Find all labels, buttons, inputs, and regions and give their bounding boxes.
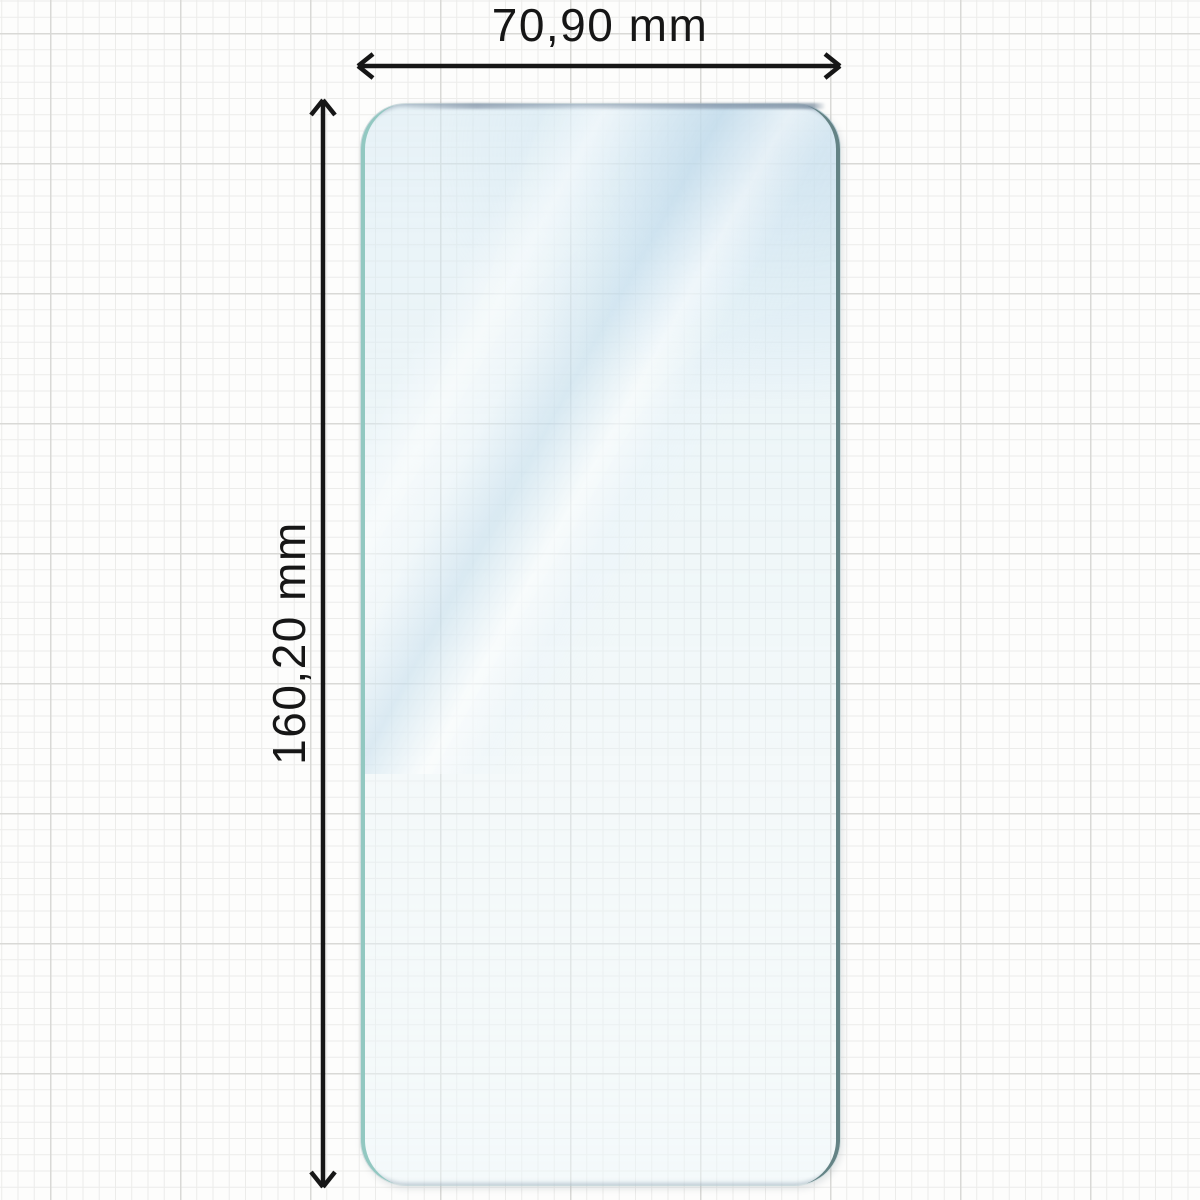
height-dimension-label: 160,20 mm — [266, 521, 312, 765]
width-dimension-arrow — [352, 48, 848, 84]
graph-paper-background: 70,90 mm 160,20 mm — [0, 0, 1200, 1200]
width-dimension-label: 70,90 mm — [492, 2, 709, 48]
screen-protector-glass — [360, 103, 841, 1186]
